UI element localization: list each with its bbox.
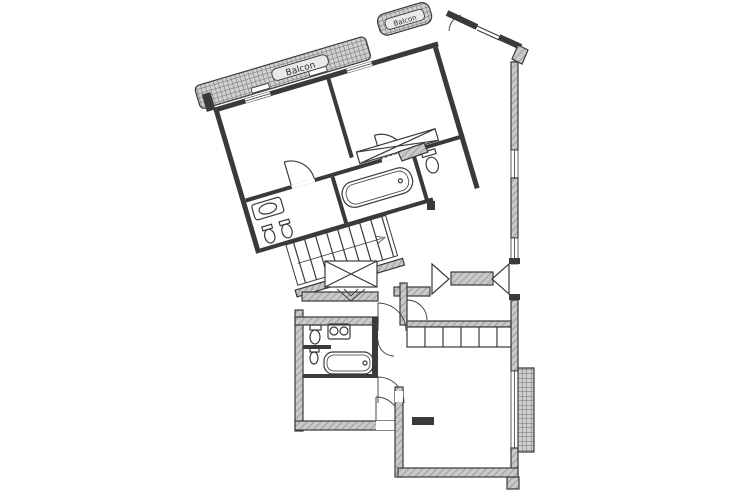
bidet [310,352,318,364]
entrance-triangle-left [432,264,449,294]
floor-plan-drawing: Balcon Balcon [0,0,743,497]
toilet [310,330,320,344]
side-balcony [518,368,534,452]
entrance-threshold [451,272,493,285]
entrance-triangle-right [492,264,509,294]
entrance-marker [432,264,509,294]
column [427,201,435,210]
wing-bathroom [246,147,449,253]
small-balcony: Balcon [376,1,434,37]
sink-unit [251,197,284,221]
double-sink [328,324,350,339]
bathtub [339,165,415,210]
kitchen-counter [407,321,511,347]
top-right-corner [447,13,528,68]
stair-direction-line [298,238,382,263]
bottom-left-room-walls [295,397,403,430]
lower-bathroom [295,310,378,431]
floor-plan-page: Balcon Balcon [0,0,743,497]
living-room-walls [395,387,518,477]
